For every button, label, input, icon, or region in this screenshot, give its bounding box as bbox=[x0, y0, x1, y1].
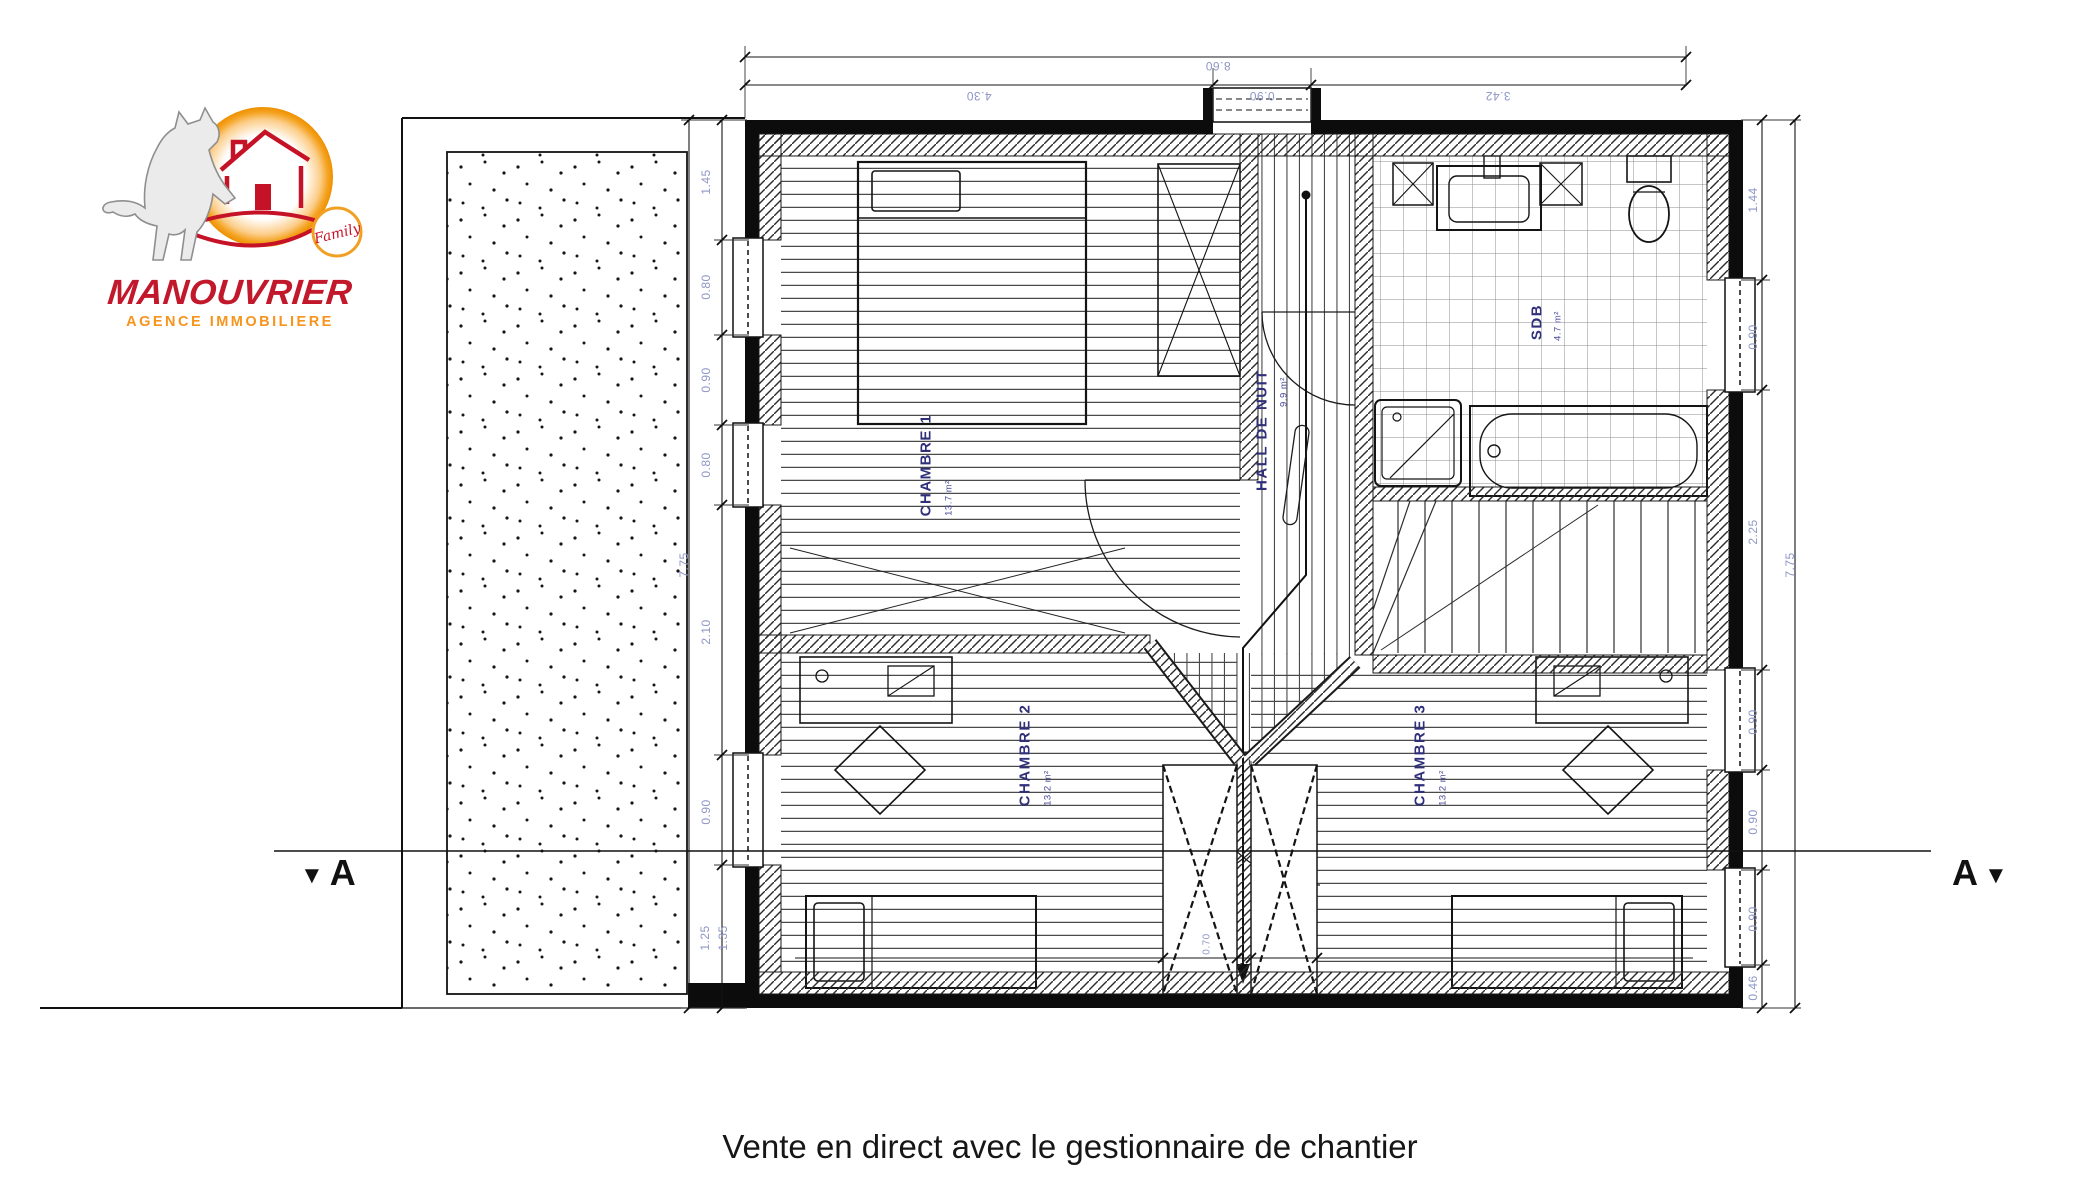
dim-right-3: 2.25 bbox=[1746, 519, 1760, 544]
house-door bbox=[255, 184, 271, 210]
dim-top-total: 8.60 bbox=[1205, 59, 1230, 73]
section-triangle-left: ▼ bbox=[300, 862, 324, 889]
cat-icon bbox=[103, 108, 235, 260]
section-letter-right: A bbox=[1952, 852, 1978, 893]
dim-top-3: 3.42 bbox=[1485, 89, 1510, 103]
room-label-chambre3: CHAMBRE 3 bbox=[1412, 704, 1429, 807]
dim-right-1: 1.44 bbox=[1746, 187, 1760, 212]
caption: Vente en direct avec le gestionnaire de … bbox=[722, 1128, 1417, 1166]
logo-graphic: Family bbox=[85, 92, 375, 270]
room-label-chambre1: CHAMBRE 1 bbox=[918, 414, 935, 517]
dim-right-total: 7.75 bbox=[1783, 552, 1797, 577]
section-triangle-right: ▼ bbox=[1984, 862, 2008, 889]
garage-speckled-area bbox=[447, 152, 687, 994]
page: Family MANOUVRIER AGENCE IMMOBILIERE 8.6… bbox=[0, 0, 2088, 1200]
dim-void: 0.70 bbox=[1202, 933, 1213, 954]
room-label-hall: HALL DE NUIT bbox=[1254, 369, 1271, 491]
room-area-chambre3: 13.2 m² bbox=[1438, 770, 1449, 806]
dim-right-6: 0.90 bbox=[1746, 906, 1760, 931]
dim-left-7: 1.25 bbox=[698, 925, 712, 950]
section-marker-left: ▼A bbox=[300, 852, 362, 894]
brand-name: MANOUVRIER bbox=[83, 275, 377, 310]
room-label-chambre2: CHAMBRE 2 bbox=[1017, 704, 1034, 807]
room-area-chambre2: 13.2 m² bbox=[1043, 770, 1054, 806]
brand-tagline: AGENCE IMMOBILIERE bbox=[85, 314, 375, 330]
dim-right-5: 0.90 bbox=[1746, 809, 1760, 834]
dim-left-2: 0.80 bbox=[699, 274, 713, 299]
dim-left-5: 2.10 bbox=[699, 619, 713, 644]
room-area-hall: 9.9 m² bbox=[1279, 377, 1290, 407]
dim-left-total: 7.75 bbox=[677, 552, 691, 577]
section-marker-right: A▼ bbox=[1946, 852, 2008, 894]
dim-right-4: 0.90 bbox=[1746, 709, 1760, 734]
room-label-sdb: SDB bbox=[1529, 304, 1546, 340]
dim-right-7: 0.46 bbox=[1746, 975, 1760, 1000]
staircase bbox=[1373, 501, 1695, 653]
dim-left-4: 0.80 bbox=[699, 452, 713, 477]
dim-left-1: 1.45 bbox=[699, 169, 713, 194]
dim-left-extra: 1.35 bbox=[716, 925, 730, 950]
room-area-sdb: 4.7 m² bbox=[1553, 311, 1564, 341]
room-area-chambre1: 13.7 m² bbox=[944, 480, 955, 516]
garage-wall-step bbox=[688, 983, 745, 1008]
dim-right-2: 0.90 bbox=[1746, 324, 1760, 349]
dim-top-1: 4.30 bbox=[966, 89, 991, 103]
section-letter-left: A bbox=[330, 852, 356, 893]
dim-top-2: 0.90 bbox=[1249, 89, 1274, 103]
agency-logo: Family MANOUVRIER AGENCE IMMOBILIERE bbox=[85, 92, 375, 330]
dim-left-3: 0.90 bbox=[699, 367, 713, 392]
dim-left-6: 0.90 bbox=[699, 799, 713, 824]
